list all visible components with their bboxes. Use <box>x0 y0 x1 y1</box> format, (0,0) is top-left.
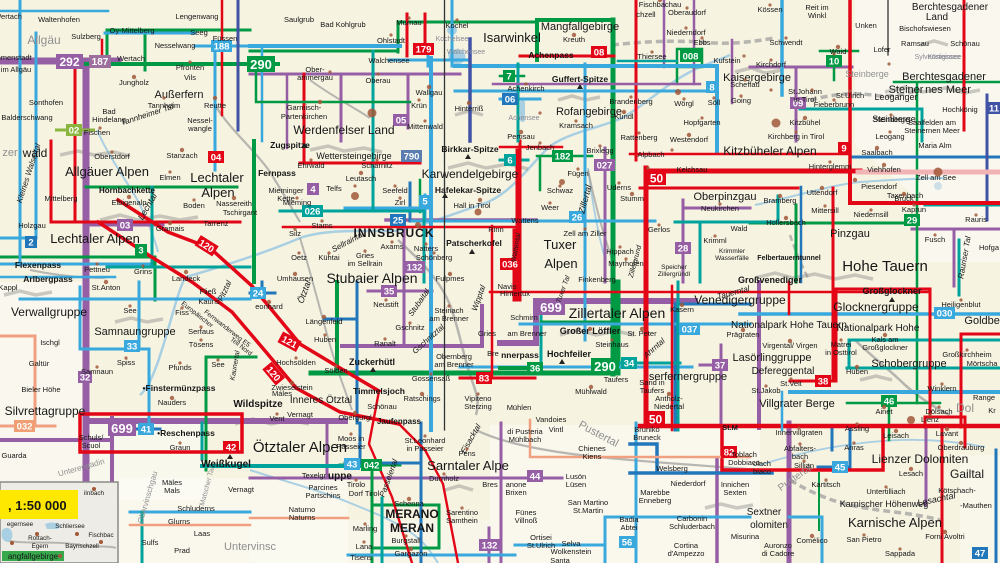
svg-text:Arlbergpass: Arlbergpass <box>23 274 73 284</box>
svg-text:Bieler Höhe: Bieler Höhe <box>21 385 60 394</box>
svg-text:wangle: wangle <box>187 124 212 133</box>
svg-text:Bre: Bre <box>487 349 499 358</box>
svg-text:Leoganger: Leoganger <box>874 92 917 102</box>
svg-text:290: 290 <box>250 57 272 72</box>
svg-text:Zuckerhütl: Zuckerhütl <box>349 357 395 367</box>
svg-text:026: 026 <box>305 207 321 218</box>
svg-text:25: 25 <box>393 216 404 227</box>
svg-text:Walchensee: Walchensee <box>369 56 410 65</box>
svg-text:Königssee: Königssee <box>928 54 961 61</box>
svg-text:Alpen: Alpen <box>201 185 234 200</box>
svg-text:chzell: chzell <box>636 10 656 19</box>
svg-text:Grins: Grins <box>134 267 152 276</box>
svg-text:43: 43 <box>347 460 358 471</box>
svg-text:10: 10 <box>829 57 840 68</box>
svg-text:132: 132 <box>482 541 498 552</box>
svg-text:Saulgrub: Saulgrub <box>284 15 314 24</box>
svg-text:030: 030 <box>937 309 953 320</box>
svg-text:Passeier: Passeier <box>336 442 366 451</box>
svg-text:Schluderns: Schluderns <box>177 504 215 513</box>
svg-text:Waltenhofen: Waltenhofen <box>38 15 80 24</box>
svg-text:Gramais: Gramais <box>156 224 185 233</box>
svg-text:St.Martin: St.Martin <box>573 506 603 515</box>
svg-text:Achenpass: Achenpass <box>528 50 574 60</box>
svg-text:Patscherkofel: Patscherkofel <box>446 238 502 248</box>
svg-text:790: 790 <box>404 152 420 163</box>
svg-text:Brixen: Brixen <box>505 488 526 497</box>
svg-text:42: 42 <box>226 443 237 454</box>
svg-text:zer: zer <box>2 147 18 159</box>
svg-text:Vils: Vils <box>184 73 196 82</box>
svg-text:Hohe Tauern: Hohe Tauern <box>842 258 928 275</box>
svg-text:Sexten: Sexten <box>723 488 746 497</box>
svg-text:Kelchsau: Kelchsau <box>677 165 708 174</box>
svg-text:Abtei: Abtei <box>620 523 637 532</box>
svg-text:11: 11 <box>989 104 1000 115</box>
svg-text:Ohlstadt: Ohlstadt <box>377 36 406 45</box>
svg-text:Mangfallgebirge: Mangfallgebirge <box>541 21 619 33</box>
svg-text:Wettersteingebirge: Wettersteingebirge <box>316 151 391 161</box>
svg-text:Großglockner: Großglockner <box>862 286 922 296</box>
svg-text:Gries: Gries <box>478 329 496 338</box>
svg-text:38: 38 <box>818 377 829 388</box>
svg-text:Karnischer Höhenweg: Karnischer Höhenweg <box>840 499 929 509</box>
svg-text:Zillergründl: Zillergründl <box>658 271 691 278</box>
svg-text:Scharnitz: Scharnitz <box>361 161 393 170</box>
svg-text:Schluderbach: Schluderbach <box>669 522 715 531</box>
svg-text:Allgäuer Alpen: Allgäuer Alpen <box>65 164 149 179</box>
svg-text:Telfs: Telfs <box>326 184 342 193</box>
svg-text:im Sellrain: im Sellrain <box>347 259 382 268</box>
svg-text:Felbertauerntunnel: Felbertauerntunnel <box>757 255 820 262</box>
svg-text:Santa: Santa <box>550 556 570 563</box>
svg-text:Sonthofen: Sonthofen <box>29 98 63 107</box>
svg-text:in Passeier: in Passeier <box>406 444 444 453</box>
svg-text:egernsee: egernsee <box>7 521 34 528</box>
svg-text:Fernpass: Fernpass <box>258 168 296 178</box>
svg-text:Mühlen: Mühlen <box>507 403 532 412</box>
svg-text:Wildspitze: Wildspitze <box>233 399 283 410</box>
svg-text:Maria Alm: Maria Alm <box>918 141 951 150</box>
svg-text:Lienzer Dolomiten: Lienzer Dolomiten <box>872 452 969 466</box>
svg-text:008: 008 <box>683 52 699 63</box>
svg-text:Wertach: Wertach <box>117 54 145 63</box>
svg-text:Land: Land <box>926 12 948 23</box>
svg-text:Weißkugel: Weißkugel <box>201 459 251 470</box>
svg-text:44: 44 <box>530 472 541 483</box>
svg-text:Piesendorf: Piesendorf <box>861 182 898 191</box>
svg-text:Tuxer: Tuxer <box>544 237 577 252</box>
svg-text:Glocknergruppe: Glocknergruppe <box>833 300 919 314</box>
svg-text:serfernergruppe: serfernergruppe <box>649 371 727 383</box>
svg-text:29: 29 <box>907 216 918 227</box>
svg-text:Speicher: Speicher <box>661 264 687 271</box>
svg-text:33: 33 <box>127 342 138 353</box>
svg-text:Vernagt: Vernagt <box>228 485 255 494</box>
svg-text:Leutasch: Leutasch <box>346 174 376 183</box>
svg-text:26: 26 <box>572 213 583 224</box>
svg-text:05: 05 <box>396 116 407 127</box>
svg-text:8: 8 <box>709 83 714 94</box>
svg-text:Vernagt: Vernagt <box>287 410 314 419</box>
svg-text:Boden: Boden <box>183 201 205 210</box>
svg-text:Mörtscha: Mörtscha <box>967 359 999 368</box>
svg-text:Sulzberg: Sulzberg <box>71 32 101 41</box>
svg-text:3: 3 <box>138 246 143 257</box>
svg-text:45: 45 <box>835 463 846 474</box>
svg-text:Berchtesgadener: Berchtesgadener <box>912 2 989 13</box>
svg-text:am Brenner: am Brenner <box>434 360 474 369</box>
svg-text:50: 50 <box>650 172 664 186</box>
svg-text:Lofer: Lofer <box>873 45 891 54</box>
svg-text:Immenstadt: Immenstadt <box>0 53 33 62</box>
svg-text:Werdenfelser Land: Werdenfelser Land <box>293 123 394 137</box>
svg-text:Verwallgruppe: Verwallgruppe <box>11 305 87 319</box>
svg-text:nes Meer: nes Meer <box>925 84 971 96</box>
svg-text:Achensee: Achensee <box>508 115 539 122</box>
svg-text:Schmirn: Schmirn <box>510 313 538 322</box>
svg-text:Rottach-: Rottach- <box>28 535 52 542</box>
svg-text:Wasserfälle: Wasserfälle <box>715 255 749 262</box>
svg-text:Schönau: Schönau <box>367 402 397 411</box>
svg-text:MERANO: MERANO <box>385 507 438 521</box>
svg-text:Steinernen Meer: Steinernen Meer <box>904 126 960 135</box>
svg-text:Villgrater Berge: Villgrater Berge <box>759 398 835 410</box>
svg-text:Inneres Ötztal: Inneres Ötztal <box>290 394 352 406</box>
svg-text:Berchtesgadener: Berchtesgadener <box>902 71 986 83</box>
svg-text:Prad: Prad <box>174 546 190 555</box>
svg-text:Karnische Alpen: Karnische Alpen <box>848 515 942 530</box>
svg-text:Wattens: Wattens <box>511 216 538 225</box>
svg-text:Oberpinzgau: Oberpinzgau <box>694 191 757 203</box>
svg-text:Partschins: Partschins <box>305 491 340 500</box>
svg-text:Tarrenz: Tarrenz <box>203 219 228 228</box>
svg-text:Fließ: Fließ <box>200 287 217 296</box>
svg-text:•Reschenpass: •Reschenpass <box>157 428 215 438</box>
svg-text:am Brenner: am Brenner <box>507 329 547 338</box>
svg-text:Sulfs: Sulfs <box>142 538 159 547</box>
svg-text:Wald: Wald <box>731 224 748 233</box>
svg-text:Kochel: Kochel <box>446 21 469 30</box>
svg-text:Lengenwang: Lengenwang <box>176 12 219 21</box>
svg-text:Winkl: Winkl <box>808 11 827 20</box>
svg-text:Lasörlinggruppe: Lasörlinggruppe <box>733 352 812 364</box>
svg-text:Lüsen: Lüsen <box>566 480 586 489</box>
svg-text:Jungholz: Jungholz <box>119 78 149 87</box>
svg-text:Birkkar-Spitze: Birkkar-Spitze <box>441 144 498 154</box>
svg-text:Stanzach: Stanzach <box>166 151 197 160</box>
svg-text:Allgäu: Allgäu <box>27 33 60 47</box>
svg-text:Tisens: Tisens <box>350 553 372 562</box>
svg-text:Kochelsee: Kochelsee <box>436 36 469 43</box>
svg-text:35: 35 <box>384 287 395 298</box>
svg-text:Karwendelgebirge: Karwendelgebirge <box>422 167 519 181</box>
svg-text:06: 06 <box>505 95 516 106</box>
svg-text:Vandoies: Vandoies <box>536 415 567 424</box>
svg-text:Schobergruppe: Schobergruppe <box>871 358 946 370</box>
svg-text:04: 04 <box>211 153 222 164</box>
svg-text:Wertach: Wertach <box>0 12 22 21</box>
svg-text:Egern: Egern <box>32 543 49 550</box>
svg-text:Kr: Kr <box>988 406 996 415</box>
svg-text:042: 042 <box>364 461 380 472</box>
svg-text:Ötztaler Alpen: Ötztaler Alpen <box>253 438 347 456</box>
svg-text:Fischbac: Fischbac <box>88 532 113 539</box>
svg-text:Hall in Tirol: Hall in Tirol <box>453 201 490 210</box>
svg-text:Tschirgant: Tschirgant <box>223 208 258 217</box>
svg-text:187: 187 <box>92 57 109 68</box>
svg-text:Kette: Kette <box>277 194 295 203</box>
svg-text:Rinn: Rinn <box>488 225 503 234</box>
svg-text:St.Anton: St.Anton <box>92 283 121 292</box>
svg-text:Schönau: Schönau <box>950 39 980 48</box>
svg-text:am Brenner: am Brenner <box>429 314 469 323</box>
svg-text:Sterzing: Sterzing <box>464 402 492 411</box>
svg-text:Bayrischzell: Bayrischzell <box>65 543 99 550</box>
svg-text:Range: Range <box>973 393 995 402</box>
svg-text:032: 032 <box>17 422 33 433</box>
svg-text:Pettneu: Pettneu <box>84 265 110 274</box>
svg-text:Bad Kohlgrub: Bad Kohlgrub <box>320 20 365 29</box>
svg-text:Hochfeiler: Hochfeiler <box>547 349 592 359</box>
svg-text:Gailtal: Gailtal <box>950 467 984 481</box>
svg-text:Außerfern: Außerfern <box>155 89 204 101</box>
svg-text:56: 56 <box>622 538 633 549</box>
svg-text:d'Ampezzo: d'Ampezzo <box>668 549 705 558</box>
svg-text:ilnbach: ilnbach <box>84 490 104 497</box>
svg-text:Taufers: Taufers <box>604 375 629 384</box>
svg-text:in Osttirol: in Osttirol <box>825 348 857 357</box>
svg-text:Bruneck: Bruneck <box>633 433 661 442</box>
svg-text:6: 6 <box>507 156 512 167</box>
svg-text:Untervinsc: Untervinsc <box>224 541 276 553</box>
svg-text:angfallgebirge: angfallgebirge <box>8 552 59 561</box>
svg-text:Sextner: Sextner <box>747 507 782 518</box>
svg-text:182: 182 <box>555 152 571 163</box>
svg-text:Holzgau: Holzgau <box>18 221 46 230</box>
svg-text:Finkenberg: Finkenberg <box>578 275 616 284</box>
svg-text:, 1:50 000: , 1:50 000 <box>8 498 67 513</box>
svg-text:Reutte: Reutte <box>204 101 226 110</box>
svg-text:-Mauthen: -Mauthen <box>960 501 992 510</box>
svg-text:34: 34 <box>624 359 635 370</box>
svg-text:699: 699 <box>111 421 133 436</box>
svg-text:41: 41 <box>141 425 152 436</box>
svg-text:Hochkönig: Hochkönig <box>942 105 977 114</box>
svg-text:MERAN: MERAN <box>390 521 434 535</box>
svg-text:Rofangebirge: Rofangebirge <box>556 106 622 118</box>
svg-text:Pfronten: Pfronten <box>176 63 204 72</box>
svg-text:Nesselwang: Nesselwang <box>155 41 196 50</box>
svg-text:Schliersee: Schliersee <box>55 523 85 530</box>
svg-text:02: 02 <box>69 126 80 137</box>
svg-text:nnerpass: nnerpass <box>501 350 539 360</box>
svg-text:03: 03 <box>120 221 131 232</box>
svg-text:Elmen: Elmen <box>159 173 180 182</box>
svg-text:08: 08 <box>594 48 605 59</box>
svg-text:ammergau: ammergau <box>297 73 333 82</box>
svg-text:Mühlbach: Mühlbach <box>509 435 542 444</box>
svg-text:Enneberg: Enneberg <box>639 496 672 505</box>
svg-text:Defereggental: Defereggental <box>752 366 815 377</box>
svg-text:Vintl: Vintl <box>549 425 564 434</box>
svg-text:Walchensee: Walchensee <box>447 49 485 56</box>
svg-text:Unken: Unken <box>855 21 877 30</box>
svg-text:im Allgäu: im Allgäu <box>1 65 31 74</box>
svg-text:Guffert-Spitze: Guffert-Spitze <box>552 74 608 84</box>
svg-text:Guarda: Guarda <box>1 451 27 460</box>
svg-text:027: 027 <box>597 161 613 172</box>
svg-text:Isarwinkel: Isarwinkel <box>483 30 541 45</box>
svg-text:Seeg: Seeg <box>190 28 208 37</box>
svg-text:Dorf Tirol: Dorf Tirol <box>349 489 380 498</box>
svg-text:Großglockner: Großglockner <box>862 343 908 352</box>
svg-text:Garmisch-: Garmisch- <box>287 103 322 112</box>
svg-text:Kappl: Kappl <box>0 283 18 292</box>
svg-text:Welsberg: Welsberg <box>656 464 688 473</box>
svg-text:Nassereith: Nassereith <box>216 199 252 208</box>
svg-text:Timmelsjoch: Timmelsjoch <box>353 386 405 396</box>
svg-text:5: 5 <box>422 197 428 208</box>
svg-text:Kufstein: Kufstein <box>713 56 740 65</box>
svg-text:biaco: biaco <box>753 467 771 476</box>
svg-text:Mittenwald: Mittenwald <box>407 122 443 131</box>
svg-text:Samthein: Samthein <box>446 516 478 525</box>
svg-text:Texelgr: Texelgr <box>302 471 327 480</box>
svg-text:37: 37 <box>715 361 726 372</box>
svg-text:Ramsau: Ramsau <box>901 39 929 48</box>
svg-text:Wallgau: Wallgau <box>416 88 443 97</box>
svg-text:Zillertaler Alpen: Zillertaler Alpen <box>569 305 666 321</box>
svg-text:Laas: Laas <box>194 529 211 538</box>
svg-text:290: 290 <box>594 359 616 374</box>
svg-text:Niedertal: Niedertal <box>654 402 684 411</box>
svg-text:Hintertux: Hintertux <box>500 289 530 298</box>
svg-text:Dol: Dol <box>956 401 974 415</box>
svg-text:Partenkirchen: Partenkirchen <box>281 112 327 121</box>
svg-text:Krimmler: Krimmler <box>719 248 746 255</box>
svg-text:Landeck: Landeck <box>172 274 201 283</box>
svg-text:Kiens: Kiens <box>583 452 602 461</box>
svg-text:Lechtaler: Lechtaler <box>190 170 244 185</box>
svg-text:28: 28 <box>678 244 689 255</box>
svg-text:Glurns: Glurns <box>168 517 190 526</box>
svg-text:Villnoß: Villnoß <box>515 516 538 525</box>
svg-text:bach: bach <box>792 452 808 461</box>
svg-text:Flexenpass: Flexenpass <box>15 260 62 270</box>
svg-text:Samnaungruppe: Samnaungruppe <box>94 326 175 338</box>
svg-text:Steinberge: Steinberge <box>845 69 889 79</box>
svg-text:Ischgl: Ischgl <box>40 338 60 347</box>
svg-text:Nationalpark Hohe: Nationalpark Hohe <box>837 323 920 334</box>
svg-text:Naturns: Naturns <box>289 513 316 522</box>
svg-text:Hofga: Hofga <box>979 243 1000 252</box>
svg-text:•Finstermünzpass: •Finstermünzpass <box>143 383 216 393</box>
svg-text:Mals: Mals <box>164 486 180 495</box>
svg-text:Scuol: Scuol <box>82 441 101 450</box>
svg-text:Hinterriß: Hinterriß <box>455 104 484 113</box>
svg-text:Ehrwald: Ehrwald <box>297 161 324 170</box>
svg-text:Sarntaler Alpe: Sarntaler Alpe <box>427 458 509 473</box>
svg-text:037: 037 <box>682 325 698 336</box>
svg-text:188: 188 <box>214 42 230 53</box>
svg-text:179: 179 <box>416 45 432 56</box>
svg-text:Füssen: Füssen <box>213 34 238 43</box>
svg-text:Oy-Mittelberg: Oy-Mittelberg <box>109 26 154 35</box>
svg-text:36: 36 <box>530 364 541 375</box>
svg-text:Balderschwang: Balderschwang <box>1 113 52 122</box>
svg-text:Alpen: Alpen <box>544 256 577 271</box>
svg-text:Silvrettagruppe: Silvrettagruppe <box>5 404 86 418</box>
svg-text:Krün: Krün <box>411 101 427 110</box>
svg-text:Kitzbüheler Alpen: Kitzbüheler Alpen <box>723 144 816 158</box>
svg-text:Bischofswiesen: Bischofswiesen <box>899 24 951 33</box>
svg-text:Pinzgau: Pinzgau <box>830 228 870 240</box>
svg-text:Oberau: Oberau <box>365 76 390 85</box>
svg-text:4: 4 <box>310 185 316 196</box>
svg-text:Goldber: Goldber <box>964 315 1000 327</box>
svg-text:292: 292 <box>59 55 79 69</box>
svg-text:INNSBRUCK: INNSBRUCK <box>354 226 435 240</box>
svg-text:7: 7 <box>506 72 511 83</box>
svg-text:Lechtaler Alpen: Lechtaler Alpen <box>50 231 140 246</box>
svg-text:2: 2 <box>28 238 33 249</box>
svg-text:Misurina: Misurina <box>731 532 760 541</box>
svg-text:Stubaier Alpen: Stubaier Alpen <box>326 270 417 286</box>
svg-text:Fischen: Fischen <box>84 128 110 137</box>
svg-text:Alpbach: Alpbach <box>637 150 664 159</box>
svg-text:Jaufenpass: Jaufenpass <box>377 417 422 426</box>
svg-text:olomiten: olomiten <box>750 520 788 531</box>
svg-text:24: 24 <box>253 289 264 300</box>
svg-text:Wolkenstein: Wolkenstein <box>551 547 592 556</box>
svg-text:Hornbachkette: Hornbachkette <box>99 186 156 195</box>
svg-text:9: 9 <box>841 144 846 155</box>
svg-text:47: 47 <box>975 549 986 560</box>
svg-text:Mittelberg: Mittelberg <box>45 194 78 203</box>
svg-text:di Cadore: di Cadore <box>762 549 795 558</box>
svg-text:Galtür: Galtür <box>29 359 50 368</box>
svg-text:St.M: St.M <box>722 423 738 432</box>
svg-text:Niederdorf: Niederdorf <box>670 479 706 488</box>
svg-text:Bres: Bres <box>482 480 498 489</box>
svg-text:83: 83 <box>479 374 490 385</box>
